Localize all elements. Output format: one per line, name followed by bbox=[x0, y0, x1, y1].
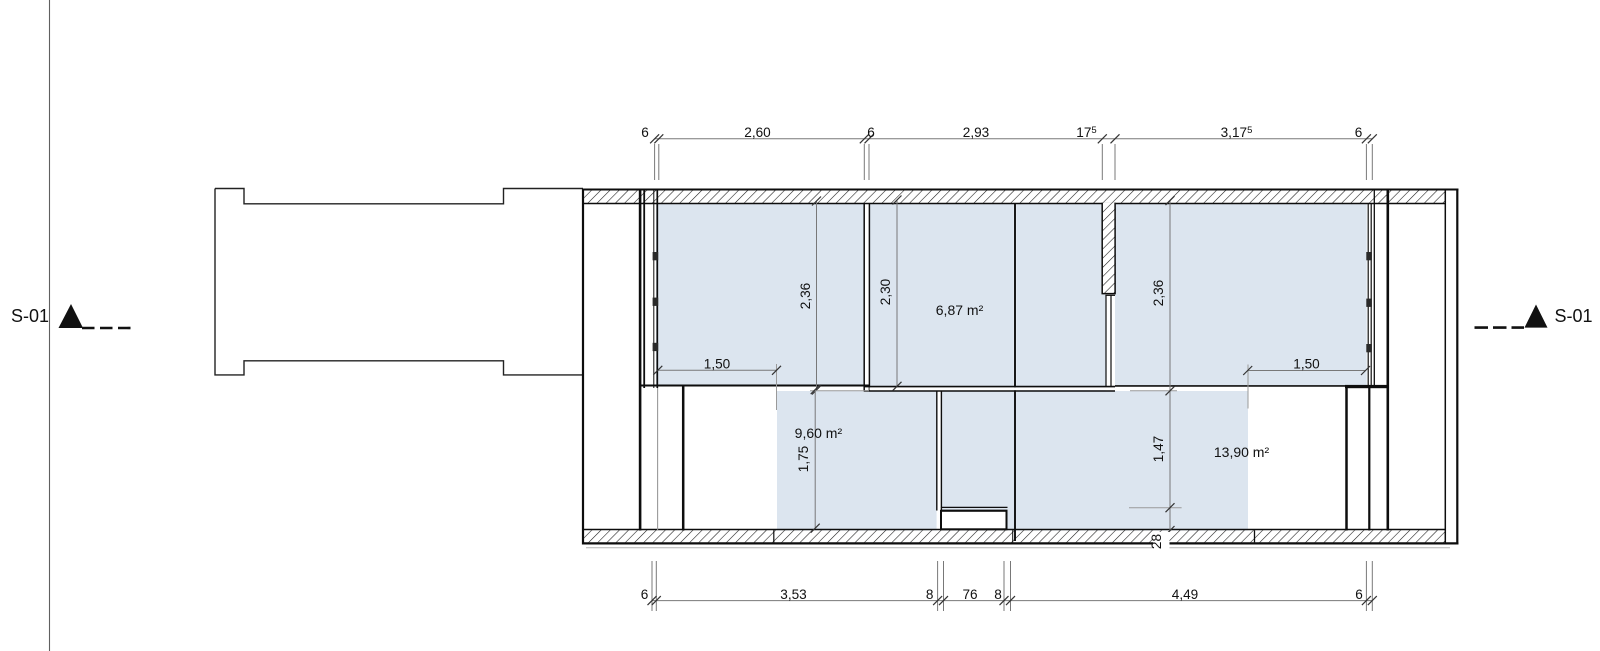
svg-text:2,36: 2,36 bbox=[1151, 280, 1166, 306]
svg-text:6: 6 bbox=[1355, 125, 1363, 140]
svg-text:S-01: S-01 bbox=[1554, 306, 1592, 326]
svg-text:1,50: 1,50 bbox=[704, 356, 731, 371]
svg-text:2,93: 2,93 bbox=[963, 125, 989, 140]
svg-text:6,87 m²: 6,87 m² bbox=[936, 302, 984, 318]
svg-text:2,30: 2,30 bbox=[878, 278, 893, 305]
svg-text:S-01: S-01 bbox=[11, 306, 49, 326]
svg-text:6: 6 bbox=[641, 125, 649, 140]
svg-text:1,47: 1,47 bbox=[1151, 436, 1166, 462]
svg-text:2,36: 2,36 bbox=[798, 283, 813, 309]
svg-text:1,50: 1,50 bbox=[1293, 356, 1320, 371]
svg-text:13,90 m²: 13,90 m² bbox=[1214, 444, 1270, 460]
svg-text:4,49: 4,49 bbox=[1172, 587, 1198, 602]
svg-text:8: 8 bbox=[994, 587, 1002, 602]
svg-text:6: 6 bbox=[867, 125, 875, 140]
svg-text:28: 28 bbox=[1149, 534, 1164, 549]
svg-text:76: 76 bbox=[962, 587, 977, 602]
svg-text:8: 8 bbox=[926, 587, 934, 602]
svg-text:3,53: 3,53 bbox=[780, 587, 806, 602]
svg-text:6: 6 bbox=[641, 587, 649, 602]
svg-text:2,60: 2,60 bbox=[744, 125, 771, 140]
svg-text:6: 6 bbox=[1355, 587, 1363, 602]
svg-text:1,75: 1,75 bbox=[796, 446, 811, 472]
svg-text:9,60 m²: 9,60 m² bbox=[795, 425, 843, 441]
